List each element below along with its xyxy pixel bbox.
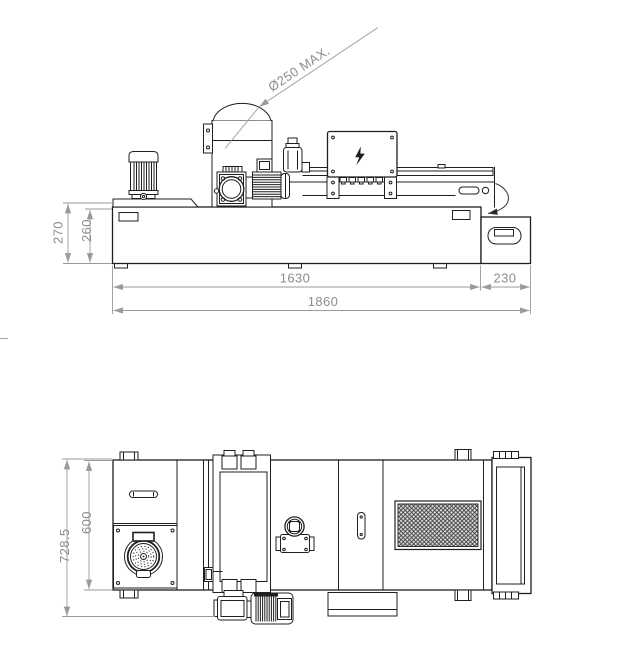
dim-overall-width: 728.5 [57, 528, 72, 563]
bench-slot [459, 187, 479, 194]
rail-stop [438, 165, 445, 169]
drawing-svg: 270 260 1630 230 1860 Ø250 MAX. [0, 0, 637, 670]
tank-feet [115, 264, 447, 269]
dim-max-diameter: Ø250 MAX. [265, 43, 332, 95]
vertical-motor [113, 152, 198, 208]
dim-tank-length: 1630 [280, 271, 311, 286]
roller [241, 456, 256, 469]
technical-drawing-canvas: 270 260 1630 230 1860 Ø250 MAX. [0, 0, 637, 670]
motor-pedestal [113, 199, 198, 207]
filter-bowl [284, 148, 303, 173]
grille-panel [395, 501, 481, 550]
bench-knob [482, 187, 488, 193]
dim-overall-height: 270 [51, 221, 66, 244]
extension-box [481, 184, 531, 264]
cooling-fins [134, 163, 154, 190]
end-frame-outer [492, 458, 531, 594]
dim-extension-length: 230 [494, 271, 517, 286]
curved-leader [488, 184, 508, 214]
discharge-chute [328, 593, 397, 617]
coupling [246, 177, 253, 198]
roller [222, 456, 237, 469]
vertical-slot-handle [358, 513, 366, 540]
belt-section [205, 451, 271, 593]
under-body-units [214, 591, 397, 625]
gearbox-pin [214, 189, 218, 193]
mid-panel [358, 513, 366, 540]
dim-body-width: 600 [79, 511, 94, 534]
tank-body [113, 207, 482, 264]
filter-unit [284, 138, 310, 172]
dim-tank-height: 260 [79, 219, 94, 242]
ventilation-grille [398, 504, 478, 547]
fan-bottom-tab [137, 571, 151, 578]
cable-glands [340, 178, 383, 185]
filter-bracket [302, 163, 310, 173]
motor-body [253, 172, 282, 199]
gearbox [214, 167, 246, 207]
fan-panel [114, 526, 178, 589]
diameter-leader [260, 28, 379, 107]
motor-hood [129, 152, 158, 163]
electrical-box [327, 132, 397, 199]
upper-left-panel [130, 491, 158, 498]
base-tank [113, 207, 482, 268]
fan-top-plate [133, 533, 154, 542]
side-view: 270 260 1630 230 1860 Ø250 MAX. [51, 28, 531, 315]
shaft-end [140, 193, 146, 199]
filter-cap [288, 138, 297, 144]
dim-overall-length: 1860 [308, 294, 339, 309]
housing-dome [213, 103, 271, 120]
end-frame [492, 452, 531, 600]
plan-view: 728.5 600 [0, 339, 531, 625]
filter-flange [286, 144, 299, 148]
